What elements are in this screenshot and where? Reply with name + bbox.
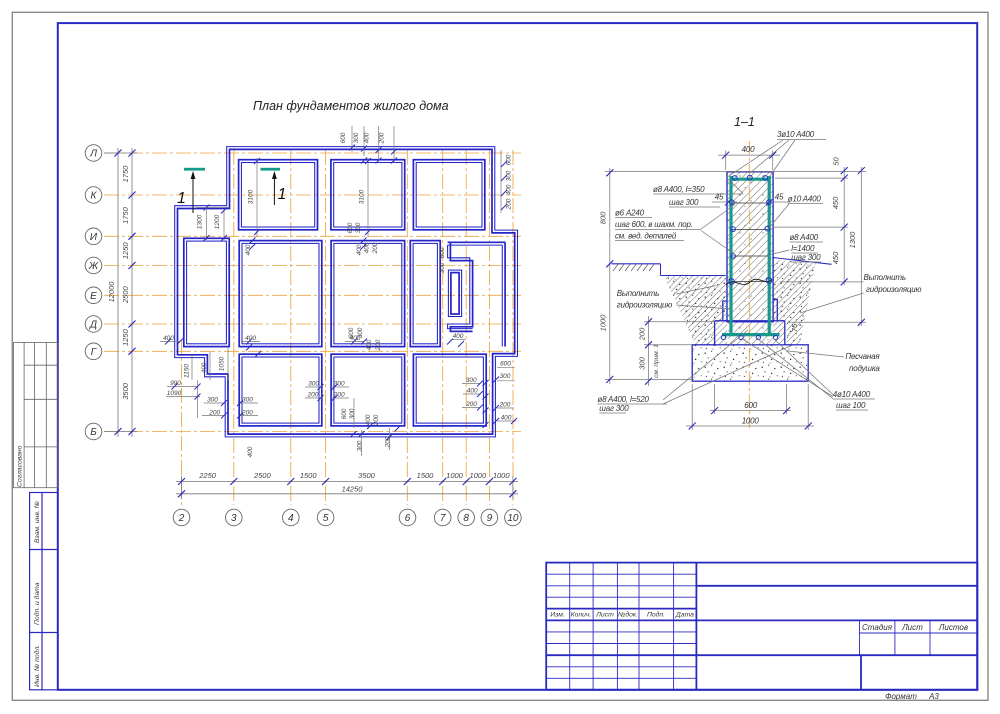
svg-text:6: 6	[405, 513, 411, 524]
svg-text:3500: 3500	[358, 471, 376, 480]
svg-text:1200: 1200	[214, 214, 221, 229]
svg-text:План фундаментов жилого дома: План фундаментов жилого дома	[253, 99, 449, 113]
svg-text:200: 200	[638, 327, 647, 341]
svg-text:400: 400	[501, 415, 512, 422]
svg-text:800: 800	[599, 211, 608, 224]
svg-text:3100: 3100	[359, 189, 366, 204]
svg-text:1750: 1750	[121, 206, 130, 224]
svg-text:200: 200	[373, 414, 380, 426]
svg-text:Инв. № подл.: Инв. № подл.	[33, 645, 41, 687]
svg-text:50: 50	[832, 157, 841, 166]
svg-text:шаг 600, в шахм. пор.: шаг 600, в шахм. пор.	[615, 220, 693, 229]
svg-text:450: 450	[831, 196, 840, 209]
svg-text:Лист: Лист	[595, 612, 614, 619]
svg-text:400: 400	[366, 339, 373, 350]
svg-text:5: 5	[323, 513, 329, 524]
svg-text:45: 45	[715, 193, 724, 202]
svg-text:1–1: 1–1	[734, 115, 755, 129]
svg-text:450: 450	[831, 251, 840, 264]
svg-text:300: 300	[466, 377, 477, 384]
svg-text:300: 300	[207, 397, 218, 404]
svg-text:1000: 1000	[742, 417, 760, 426]
svg-text:400: 400	[467, 388, 478, 395]
svg-text:1500: 1500	[417, 471, 435, 480]
svg-text:600: 600	[439, 247, 446, 258]
svg-text:1: 1	[278, 186, 287, 203]
svg-text:2250: 2250	[198, 471, 217, 480]
svg-text:2: 2	[178, 513, 185, 524]
svg-text:ø8 A400: ø8 A400	[790, 233, 819, 242]
svg-text:ø8 A400, l=520: ø8 A400, l=520	[597, 395, 649, 404]
svg-text:1250: 1250	[121, 328, 130, 346]
svg-text:1000: 1000	[446, 471, 464, 480]
svg-text:шаг 300: шаг 300	[669, 198, 699, 207]
svg-text:200: 200	[375, 339, 382, 351]
svg-text:400: 400	[364, 242, 371, 253]
svg-text:300: 300	[353, 132, 360, 143]
svg-text:75: 75	[790, 323, 799, 332]
svg-text:Дата: Дата	[675, 612, 694, 619]
svg-text:300: 300	[349, 408, 356, 419]
svg-text:Взам. инв. №: Взам. инв. №	[34, 501, 41, 543]
svg-text:гидроизоляцию: гидроизоляцию	[866, 285, 921, 294]
svg-text:1250: 1250	[121, 242, 130, 260]
svg-text:300: 300	[355, 222, 362, 233]
svg-text:Изм.: Изм.	[550, 612, 565, 619]
svg-text:300: 300	[357, 440, 364, 451]
svg-text:300: 300	[439, 262, 446, 273]
svg-text:400: 400	[742, 145, 755, 154]
svg-text:400: 400	[245, 244, 252, 255]
svg-text:ø10 A400: ø10 A400	[788, 195, 822, 204]
svg-text:600: 600	[341, 408, 348, 419]
svg-text:Стадия: Стадия	[862, 623, 893, 632]
svg-text:9: 9	[487, 513, 493, 524]
svg-text:200: 200	[379, 132, 386, 144]
svg-text:1300: 1300	[848, 231, 857, 249]
svg-text:10: 10	[507, 513, 519, 524]
svg-text:600: 600	[506, 154, 513, 165]
svg-text:14250: 14250	[342, 485, 364, 494]
svg-text:l=1400: l=1400	[791, 244, 815, 253]
svg-text:см. прим. 1: см. прим. 1	[653, 344, 660, 378]
svg-text:3100: 3100	[248, 189, 255, 204]
svg-text:1: 1	[177, 190, 186, 207]
svg-text:400: 400	[245, 335, 256, 342]
svg-text:45: 45	[775, 193, 784, 202]
svg-text:300: 300	[357, 327, 364, 338]
svg-text:подушка: подушка	[849, 364, 880, 373]
svg-text:шаг 300: шаг 300	[599, 404, 629, 413]
svg-text:ø6 А240: ø6 А240	[615, 209, 645, 218]
svg-text:Выполнить: Выполнить	[617, 289, 659, 298]
svg-text:А3: А3	[928, 692, 939, 701]
svg-text:гидроизоляцию: гидроизоляцию	[617, 301, 672, 310]
svg-text:300: 300	[638, 356, 647, 369]
svg-text:8: 8	[463, 513, 469, 524]
svg-text:200: 200	[307, 391, 319, 398]
svg-text:1050: 1050	[219, 356, 226, 371]
svg-text:1000: 1000	[599, 314, 608, 332]
svg-text:1000: 1000	[469, 471, 487, 480]
svg-text:Е: Е	[90, 291, 97, 302]
svg-text:4ø10 A400: 4ø10 A400	[833, 390, 871, 399]
svg-text:№док.: №док.	[618, 611, 638, 619]
svg-text:Д: Д	[89, 320, 97, 331]
svg-text:3ø10 A400: 3ø10 A400	[777, 130, 815, 139]
svg-text:200: 200	[208, 410, 220, 417]
svg-text:300: 300	[242, 397, 253, 404]
svg-text:2500: 2500	[121, 286, 130, 305]
svg-text:600: 600	[348, 327, 355, 338]
svg-text:400: 400	[201, 362, 208, 373]
svg-text:Б: Б	[90, 427, 97, 438]
svg-text:7: 7	[440, 513, 446, 524]
svg-text:400: 400	[364, 132, 371, 143]
svg-text:12000: 12000	[107, 281, 116, 303]
svg-text:шаг 300: шаг 300	[791, 253, 821, 262]
svg-text:600: 600	[500, 361, 511, 368]
svg-text:1150: 1150	[184, 364, 191, 378]
svg-text:1300: 1300	[197, 214, 204, 229]
svg-text:1090: 1090	[167, 390, 182, 397]
svg-text:Л: Л	[89, 149, 97, 160]
svg-text:Согласовано: Согласовано	[17, 445, 24, 487]
svg-text:Подп. и дата: Подп. и дата	[33, 582, 41, 625]
svg-text:И: И	[90, 232, 98, 243]
svg-text:Лист: Лист	[901, 623, 923, 632]
svg-text:1750: 1750	[121, 165, 130, 183]
svg-text:400: 400	[365, 414, 372, 425]
svg-text:ø8 A400, l=350: ø8 A400, l=350	[653, 185, 705, 194]
svg-text:400: 400	[247, 446, 254, 457]
svg-text:1500: 1500	[300, 471, 318, 480]
svg-text:600: 600	[744, 401, 757, 410]
svg-text:4: 4	[288, 513, 294, 524]
svg-text:600: 600	[347, 222, 354, 233]
svg-text:шаг 100: шаг 100	[836, 401, 866, 410]
svg-text:Подп.: Подп.	[647, 611, 665, 619]
svg-text:1000: 1000	[493, 471, 511, 480]
svg-text:400: 400	[356, 244, 363, 255]
svg-text:600: 600	[340, 132, 347, 143]
svg-text:3500: 3500	[121, 382, 130, 400]
svg-text:200: 200	[372, 242, 379, 254]
svg-text:300: 300	[308, 381, 319, 388]
svg-text:300: 300	[500, 373, 511, 380]
svg-text:см. вед. деталей: см. вед. деталей	[615, 232, 677, 241]
svg-text:Ж: Ж	[88, 261, 99, 272]
svg-text:Колич.: Колич.	[571, 612, 592, 619]
svg-text:Листов: Листов	[938, 623, 968, 632]
svg-text:Песчаная: Песчаная	[845, 352, 880, 361]
svg-text:400: 400	[453, 333, 464, 340]
svg-text:Выполнить: Выполнить	[864, 273, 906, 282]
svg-text:200: 200	[499, 402, 511, 409]
svg-text:3: 3	[231, 513, 237, 524]
svg-text:200: 200	[465, 401, 477, 408]
svg-text:2500: 2500	[253, 471, 272, 480]
svg-text:Формат: Формат	[885, 692, 917, 701]
